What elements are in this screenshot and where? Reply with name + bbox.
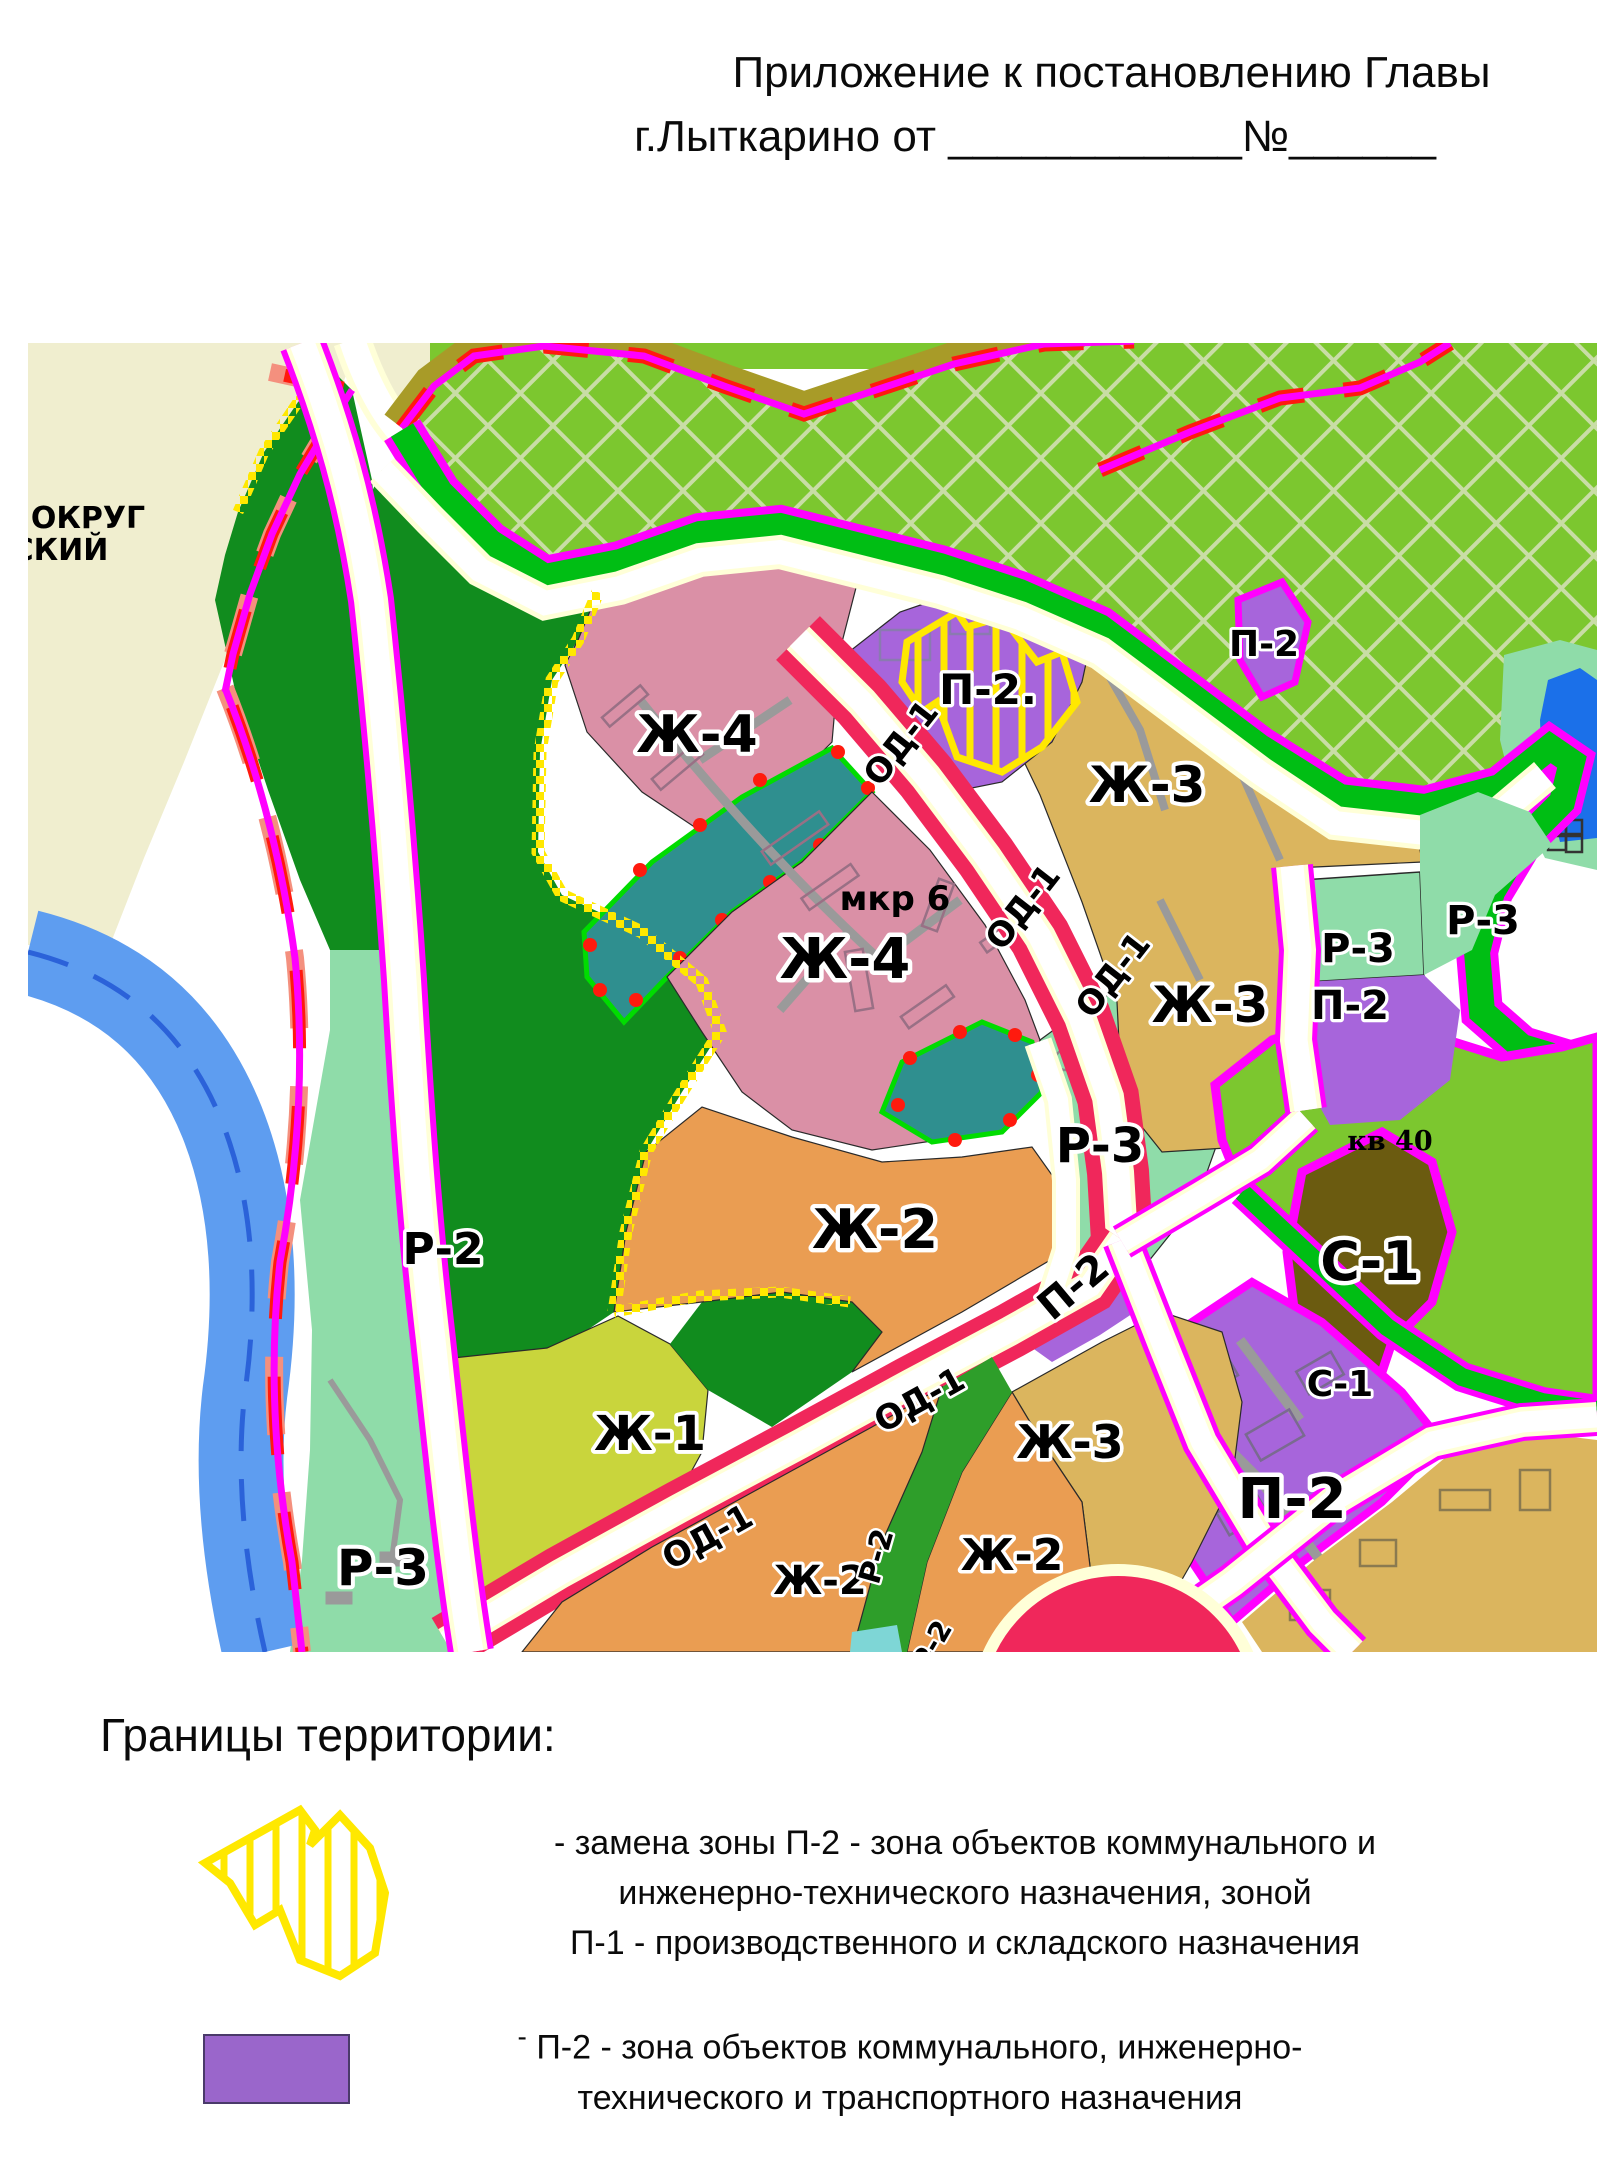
map-label: Р-3 — [1321, 926, 1395, 972]
map-label: Ж-3 — [1152, 976, 1269, 1034]
map-label: Р-2 — [402, 1224, 483, 1275]
map-label: С-1 — [1320, 1230, 1420, 1293]
road-descending-right — [1292, 866, 1306, 1110]
header-line-2: г.Лыткарино от ____________№______ — [560, 112, 1510, 162]
legend-hatched-area-icon — [190, 1798, 400, 1983]
map-label: СКИЙ — [28, 532, 108, 568]
legend-line: - П-2 - зона объектов коммунального, инж… — [360, 2012, 1460, 2073]
map-label: П-2 — [1229, 624, 1299, 665]
map-label: Ж-3 — [1016, 1415, 1123, 1469]
map-label: С-1 — [1307, 1364, 1373, 1405]
map-label: Р-3 — [337, 1539, 429, 1597]
legend-line: П-1 - производственного и складского наз… — [420, 1918, 1510, 1968]
map-label: Ж-2 — [812, 1198, 938, 1261]
legend-dash: - — [518, 2021, 527, 2052]
map-label: Р-3 — [1056, 1118, 1145, 1174]
map-label: Ж-2 — [773, 1558, 866, 1604]
map-label: Ж-3 — [1089, 756, 1206, 814]
map-label: Ж-4 — [780, 927, 911, 992]
map-label: П-2. — [939, 665, 1037, 714]
map-label: Ж-1 — [594, 1406, 706, 1462]
header-line-1: Приложение к постановлению Главы — [600, 48, 1623, 98]
map-label: Ж-2 — [961, 1530, 1064, 1581]
page: Приложение к постановлению Главы г.Лытка… — [0, 0, 1623, 2158]
map-label: Ж-4 — [636, 705, 757, 765]
legend-title: Границы территории: — [100, 1708, 556, 1762]
map-label: П-2 — [1237, 1467, 1346, 1532]
legend-line: - замена зоны П-2 - зона объектов коммун… — [420, 1818, 1510, 1868]
map-label: П-2 — [1311, 983, 1389, 1029]
map-label: кв 40 — [1347, 1126, 1432, 1157]
legend-purple-swatch — [203, 2034, 350, 2104]
legend-line: технического и транспортного назначения — [360, 2073, 1460, 2123]
zoning-map: ОКРУГСКИЙЖ-4Ж-4мкр 6Ж-3Ж-3Ж-3Ж-2Ж-2Ж-2Ж-… — [28, 343, 1597, 1652]
map-label: мкр 6 — [840, 879, 951, 919]
legend-line: инженерно-технического назначения, зоной — [420, 1868, 1510, 1918]
map-label: ОКРУГ — [31, 501, 145, 536]
legend-item-2-text: - П-2 - зона объектов коммунального, инж… — [360, 2012, 1460, 2123]
legend-item-1-text: - замена зоны П-2 - зона объектов коммун… — [420, 1818, 1510, 1968]
map-label: Р-3 — [1446, 898, 1520, 944]
